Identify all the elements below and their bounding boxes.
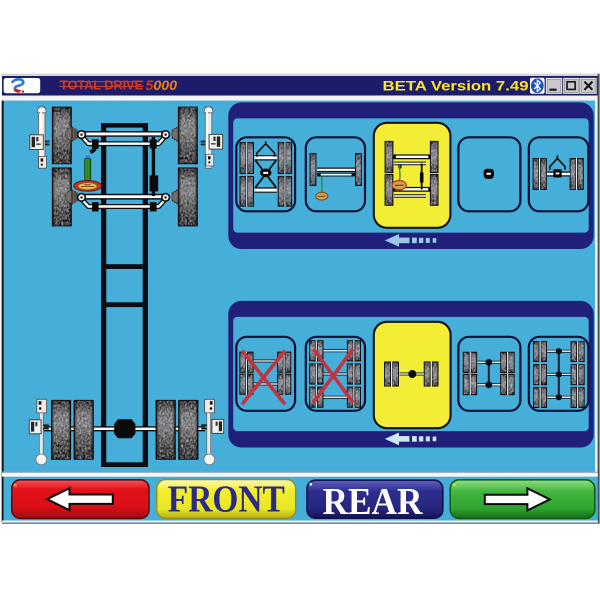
svg-text:REAR: REAR: [323, 481, 424, 523]
svg-text:TOTAL DRIVE: TOTAL DRIVE: [60, 78, 143, 93]
svg-text:5000: 5000: [146, 78, 178, 94]
svg-text:BETA Version 7.49: BETA Version 7.49: [383, 79, 529, 94]
svg-text:FRONT: FRONT: [168, 478, 285, 520]
